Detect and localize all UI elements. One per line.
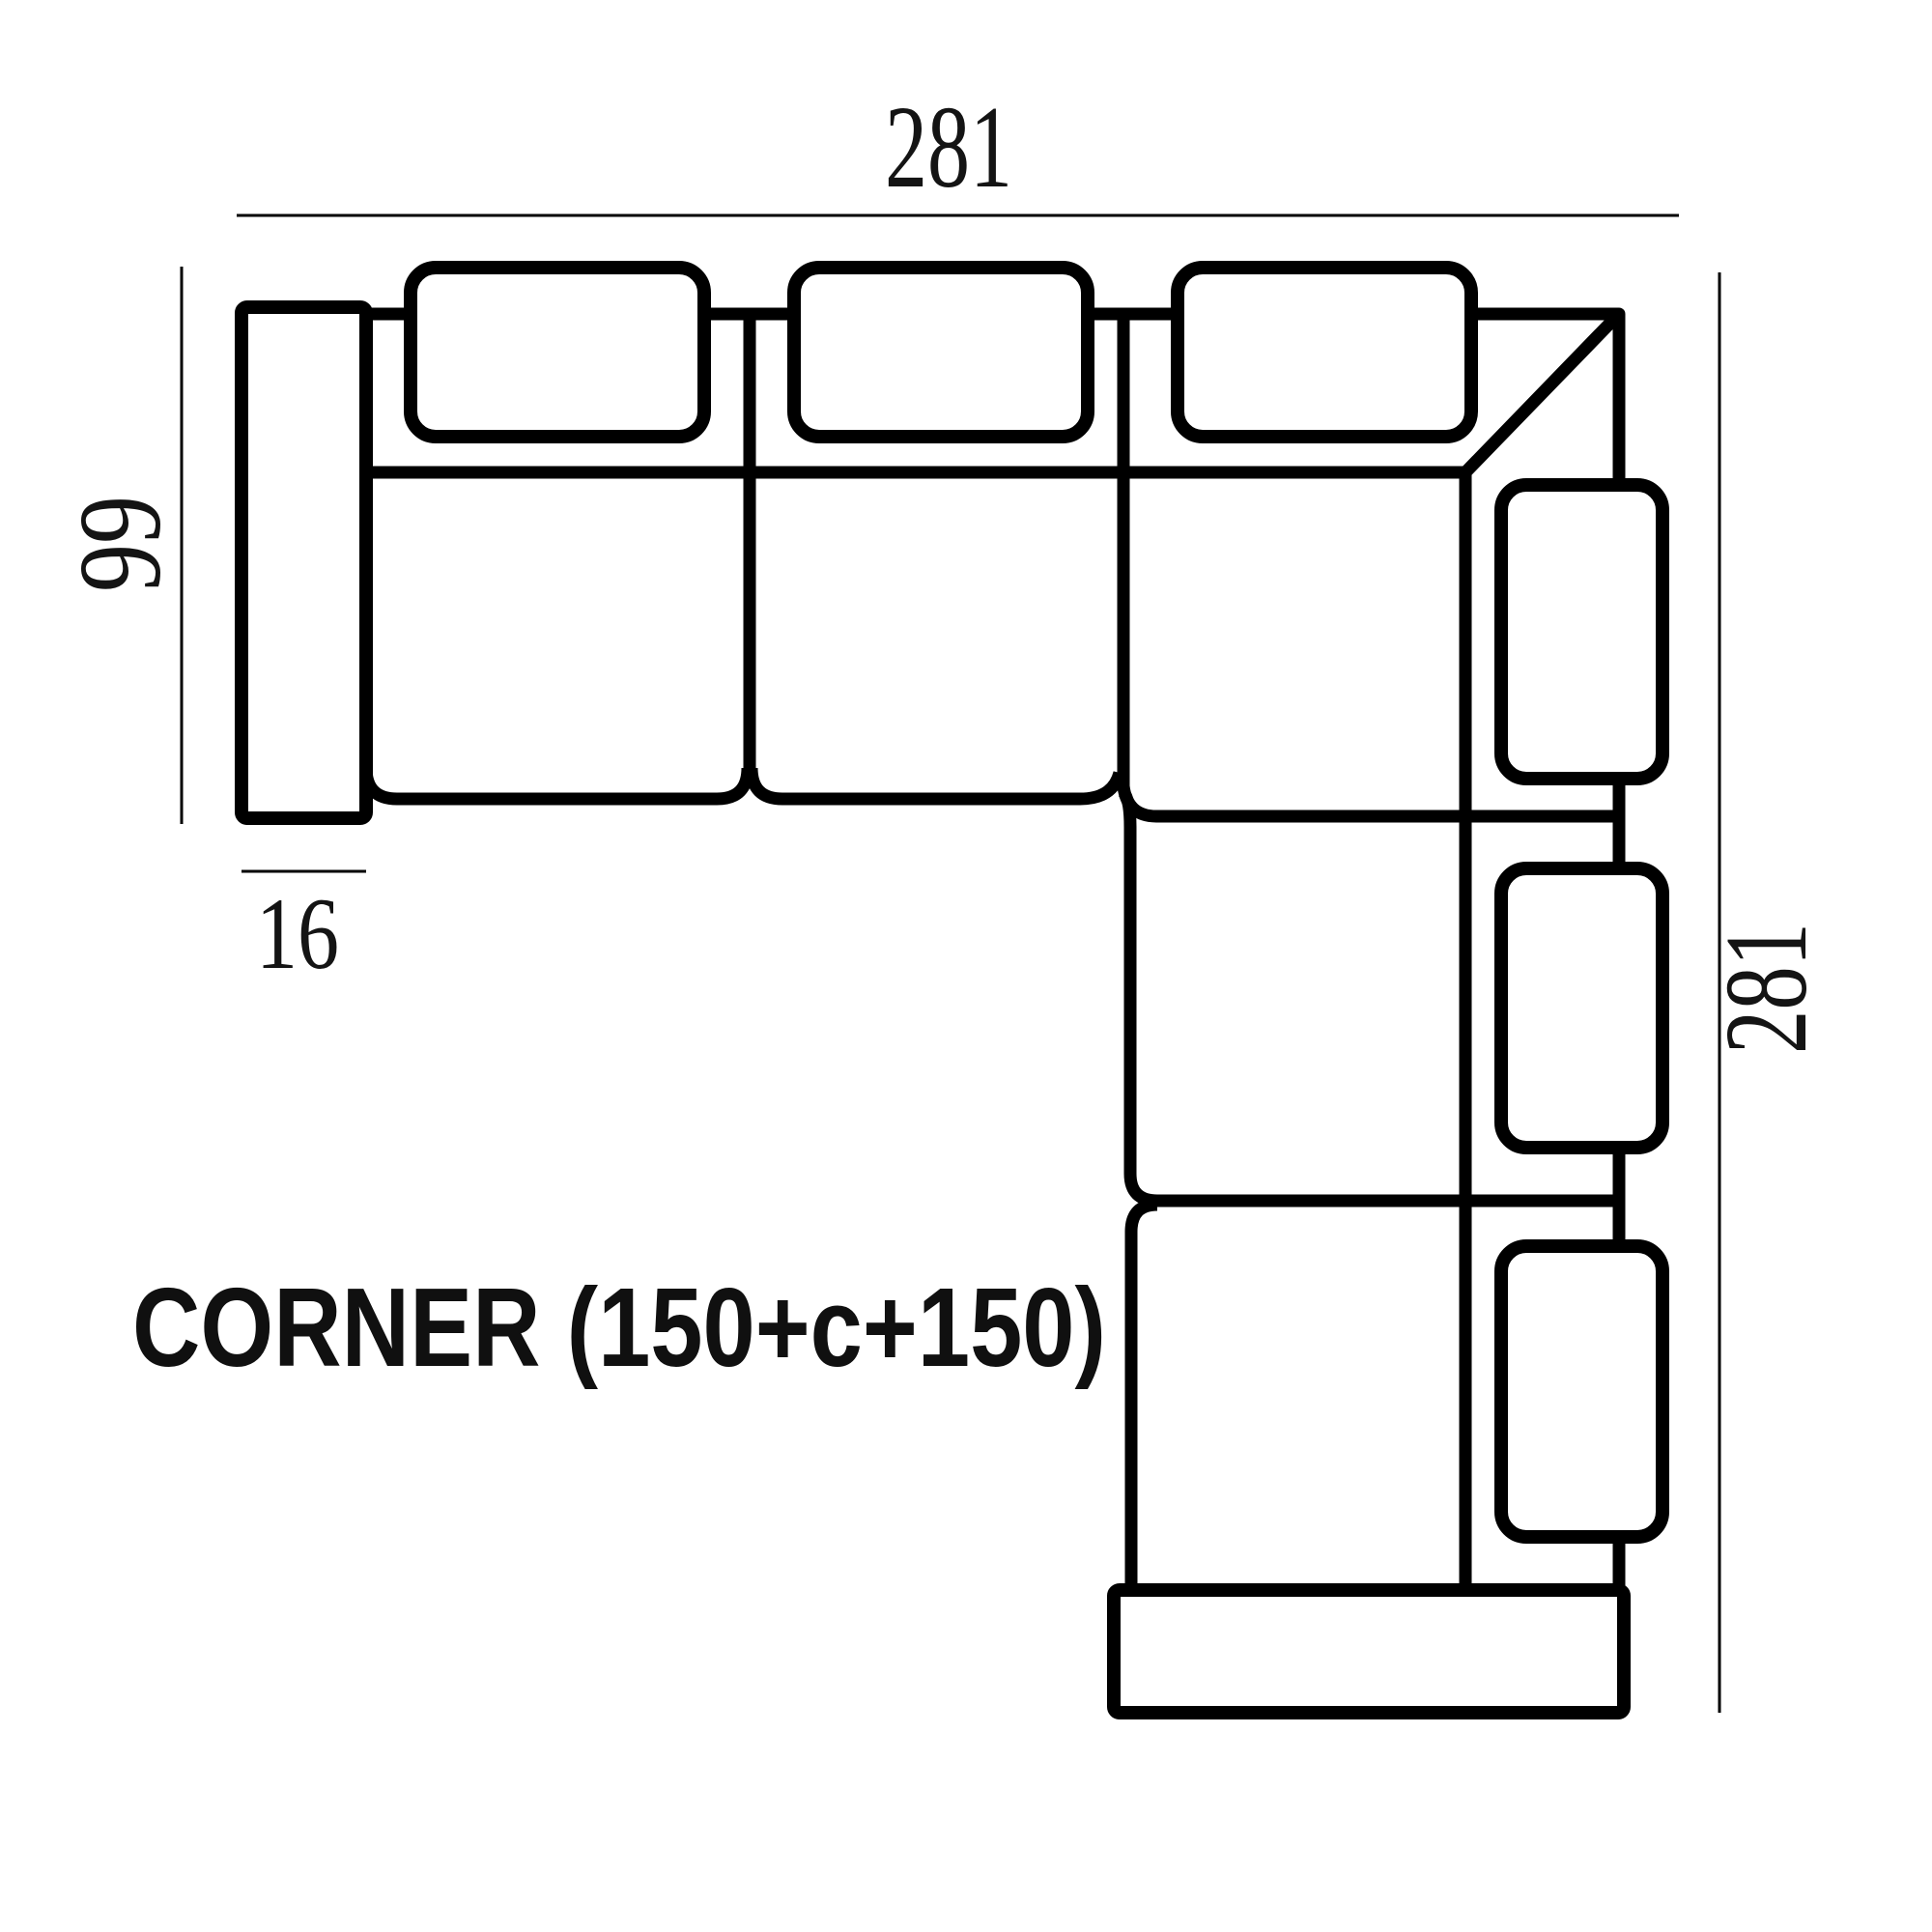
front-edge-lower bbox=[1131, 1205, 1157, 1590]
backrest-outer-edge bbox=[366, 314, 1619, 1590]
top-width-dimension-label: 281 bbox=[885, 82, 1012, 213]
corner-seat-bottom-edge bbox=[1123, 786, 1619, 816]
front-edge-upper bbox=[1123, 792, 1157, 1201]
corner-sofa-dimension-drawing: 281 99 16 281 CORNER (150+c+150) bbox=[0, 0, 1932, 1932]
seat-2-front-edge bbox=[752, 768, 1120, 799]
right-cushion-2 bbox=[1501, 868, 1662, 1148]
left-armrest bbox=[241, 307, 366, 818]
sofa-outline bbox=[241, 307, 1624, 1713]
product-title: CORNER (150+c+150) bbox=[132, 1264, 1106, 1390]
bottom-armrest bbox=[1114, 1590, 1624, 1713]
top-cushion-3 bbox=[1178, 268, 1471, 437]
top-cushion-2 bbox=[794, 268, 1088, 437]
corner-diagonal-seam bbox=[1465, 314, 1619, 472]
right-length-dimension-label: 281 bbox=[1701, 923, 1832, 1054]
armrest-width-dimension-label: 16 bbox=[256, 877, 339, 990]
diagram-page: 281 99 16 281 CORNER (150+c+150) bbox=[0, 0, 1932, 1932]
top-cushion-1 bbox=[411, 268, 704, 437]
right-cushion-1 bbox=[1501, 485, 1662, 779]
seat-1-front-edge bbox=[366, 768, 748, 799]
left-depth-dimension-label: 99 bbox=[55, 496, 185, 592]
right-cushion-3 bbox=[1501, 1246, 1662, 1537]
